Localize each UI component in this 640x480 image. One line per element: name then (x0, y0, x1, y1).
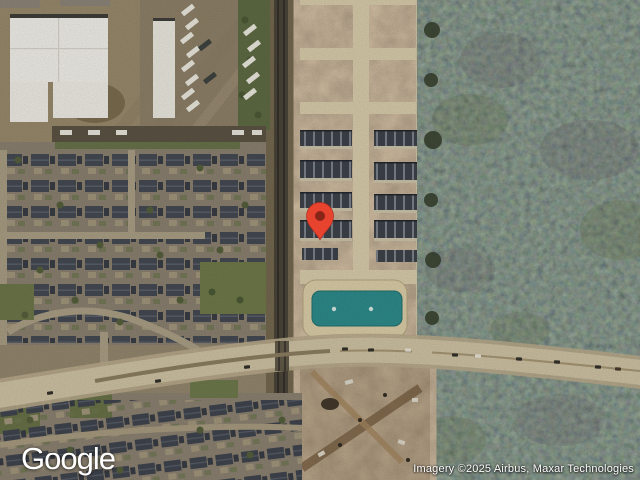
google-logo[interactable]: Google (21, 440, 115, 477)
pin-dot (315, 211, 325, 221)
satellite-imagery (0, 0, 640, 480)
imagery-attribution: Imagery ©2025 Airbus, Maxar Technologies (413, 463, 634, 475)
map-viewport[interactable]: Google Imagery ©2025 Airbus, Maxar Techn… (0, 0, 640, 480)
